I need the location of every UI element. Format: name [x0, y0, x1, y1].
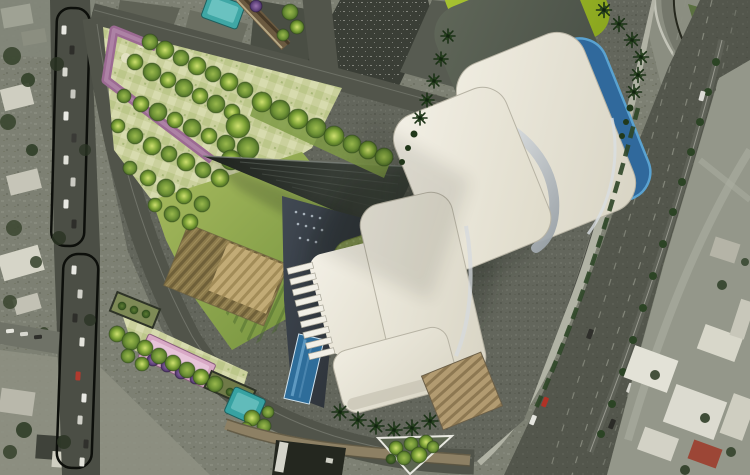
tree-icon: [207, 95, 225, 113]
vehicle: [6, 329, 14, 334]
satellite-tree: [726, 447, 736, 457]
satellite-tree: [3, 47, 21, 65]
tree-icon: [142, 310, 150, 318]
satellite-tree: [3, 445, 17, 459]
tree-icon: [195, 162, 211, 178]
window-dot: [299, 237, 302, 240]
window-dot: [311, 215, 314, 218]
tree-icon: [117, 89, 131, 103]
palm-center: [617, 22, 621, 26]
median-tree: [669, 208, 677, 216]
tree-icon: [207, 376, 223, 392]
vehicle: [61, 25, 66, 34]
palm-center: [410, 426, 414, 430]
median-tree: [678, 178, 686, 186]
palm-tree-icon: [413, 111, 427, 125]
palm-center: [632, 90, 636, 94]
tree-icon: [277, 29, 289, 41]
tree-icon: [140, 170, 156, 186]
tree-icon: [111, 119, 125, 133]
window-dot: [303, 213, 306, 216]
tree-icon: [142, 34, 158, 50]
tree-icon: [156, 41, 174, 59]
tree-icon: [137, 340, 153, 356]
palm-center: [425, 98, 429, 102]
tree-icon: [220, 73, 238, 91]
window-dot: [307, 239, 310, 242]
tree-icon: [282, 4, 298, 20]
palm-tree-icon: [434, 52, 448, 66]
vehicle: [71, 265, 76, 274]
palm-tree-icon: [441, 29, 455, 43]
satellite-tree: [52, 231, 66, 245]
tree-icon: [201, 128, 217, 144]
satellite-building: [0, 388, 36, 416]
tree-icon: [411, 447, 427, 463]
tree-icon: [123, 161, 137, 175]
satellite-tree: [50, 57, 64, 71]
tree-icon: [270, 100, 290, 120]
median-tree: [696, 118, 704, 126]
tree-icon: [176, 188, 192, 204]
palm-tree-icon: [631, 68, 646, 83]
median-tree: [639, 304, 647, 312]
tree-icon: [133, 96, 149, 112]
satellite-tree: [84, 314, 96, 326]
median-tree: [597, 430, 605, 438]
tree-icon: [127, 128, 143, 144]
vehicle: [77, 289, 82, 298]
vehicle: [63, 155, 68, 164]
tree-icon: [161, 146, 177, 162]
tree-icon: [290, 20, 304, 34]
palm-tree-icon: [368, 418, 384, 434]
palm-center: [374, 424, 378, 428]
vehicle: [63, 111, 68, 120]
tree-icon: [194, 196, 210, 212]
window-dot: [297, 223, 300, 226]
palm-center: [428, 419, 432, 423]
median-tree: [687, 148, 695, 156]
satellite-tree: [700, 413, 710, 423]
median-tree: [608, 400, 616, 408]
tree-icon: [193, 369, 209, 385]
palm-tree-icon: [627, 85, 642, 100]
tree-icon: [143, 63, 161, 81]
palm-center: [446, 34, 450, 38]
satellite-tree: [79, 144, 91, 156]
purple-tree-icon: [250, 0, 262, 12]
satellite-tree: [741, 258, 749, 266]
tree-icon: [167, 112, 183, 128]
palm-center: [639, 55, 643, 59]
vehicle: [63, 199, 68, 208]
palm-tree-icon: [404, 420, 420, 436]
vehicle: [69, 45, 74, 54]
vehicle: [77, 415, 82, 424]
tree-icon: [151, 348, 167, 364]
satellite-tree: [26, 144, 38, 156]
satellite-tree: [650, 370, 660, 380]
palm-center: [602, 8, 606, 12]
vehicle: [34, 335, 42, 340]
tree-icon: [397, 451, 411, 465]
tree-icon: [386, 454, 396, 464]
palm-center: [392, 428, 396, 432]
satellite-tree: [680, 465, 690, 475]
vehicle: [79, 337, 84, 346]
scene-layer: [0, 0, 750, 475]
vehicle: [70, 177, 75, 186]
palm-center: [439, 57, 443, 61]
tree-icon: [130, 306, 138, 314]
vehicle: [70, 89, 75, 98]
tree-icon: [164, 206, 180, 222]
satellite-tree: [30, 256, 42, 268]
vehicle: [83, 439, 88, 448]
vehicle: [71, 133, 76, 142]
tree-icon: [160, 72, 176, 88]
tree-icon: [252, 92, 272, 112]
vehicle: [20, 332, 28, 337]
palm-center: [432, 79, 436, 83]
palm-tree-icon: [612, 17, 627, 32]
vehicle: [79, 457, 84, 466]
palm-tree-icon: [597, 3, 612, 18]
tree-icon: [262, 406, 274, 418]
tree-icon: [173, 50, 189, 66]
shrub: [627, 105, 634, 112]
satellite-tree: [6, 220, 22, 236]
palm-tree-icon: [386, 422, 402, 438]
aerial-site-plan: [0, 0, 750, 475]
satellite-tree: [57, 435, 71, 449]
palm-tree-icon: [427, 74, 441, 88]
tree-icon: [157, 179, 175, 197]
satellite-tree: [0, 114, 16, 130]
vehicle: [72, 313, 77, 322]
tree-icon: [148, 198, 162, 212]
tree-icon: [182, 214, 198, 230]
tree-icon: [183, 119, 201, 137]
tree-icon: [427, 441, 439, 453]
tree-icon: [127, 54, 143, 70]
tree-icon: [118, 302, 126, 310]
median-tree: [659, 240, 667, 248]
tree-icon: [165, 355, 181, 371]
satellite-tree: [717, 280, 727, 290]
median-tree: [629, 336, 637, 344]
palm-tree-icon: [422, 413, 438, 429]
tree-icon: [175, 79, 193, 97]
palm-tree-icon: [332, 404, 348, 420]
site-plan-canvas: [0, 0, 750, 475]
satellite-tree: [21, 73, 35, 87]
palm-center: [338, 410, 342, 414]
tree-icon: [205, 66, 221, 82]
palm-center: [636, 73, 640, 77]
tree-icon: [343, 135, 361, 153]
vehicle: [71, 219, 76, 228]
shrub: [411, 131, 418, 138]
tree-icon: [177, 153, 195, 171]
tree-icon: [143, 137, 161, 155]
tree-icon: [306, 118, 326, 138]
window-dot: [305, 225, 308, 228]
vehicle: [81, 393, 86, 402]
palm-tree-icon: [625, 33, 640, 48]
tree-icon: [192, 88, 208, 104]
window-dot: [295, 211, 298, 214]
tree-icon: [288, 109, 308, 129]
shrub: [623, 119, 629, 125]
palm-tree-icon: [420, 93, 434, 107]
satellite-tree: [16, 422, 32, 438]
vehicle: [75, 371, 80, 380]
tree-icon: [188, 57, 206, 75]
median-tree: [712, 58, 720, 66]
tree-icon: [135, 357, 149, 371]
tree-icon: [179, 362, 195, 378]
palm-center: [356, 418, 360, 422]
tree-icon: [149, 103, 167, 121]
tree-icon: [237, 82, 253, 98]
palm-tree-icon: [350, 412, 366, 428]
palm-tree-icon: [634, 50, 649, 65]
satellite-tree: [3, 295, 17, 309]
palm-center: [630, 38, 634, 42]
tree-icon: [324, 126, 344, 146]
tree-icon: [121, 349, 135, 363]
tree-icon: [226, 114, 250, 138]
shrub: [619, 133, 625, 139]
palm-center: [418, 116, 422, 120]
median-tree: [649, 272, 657, 280]
vehicle: [62, 67, 67, 76]
